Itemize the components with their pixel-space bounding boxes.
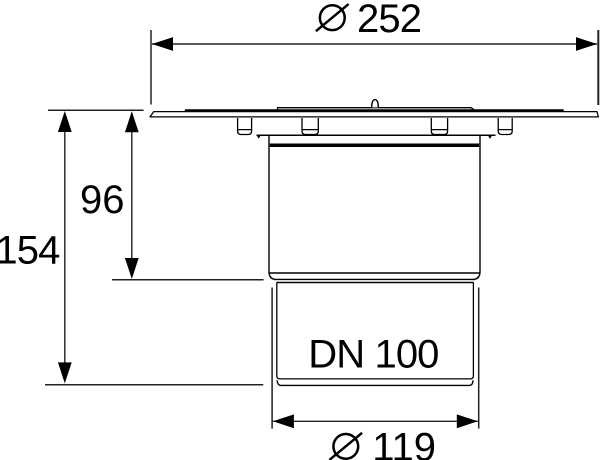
- svg-text:DN 100: DN 100: [308, 332, 438, 376]
- svg-text:154: 154: [0, 229, 60, 273]
- svg-text:119: 119: [372, 426, 436, 460]
- svg-text:96: 96: [80, 178, 125, 222]
- svg-text:252: 252: [357, 0, 421, 41]
